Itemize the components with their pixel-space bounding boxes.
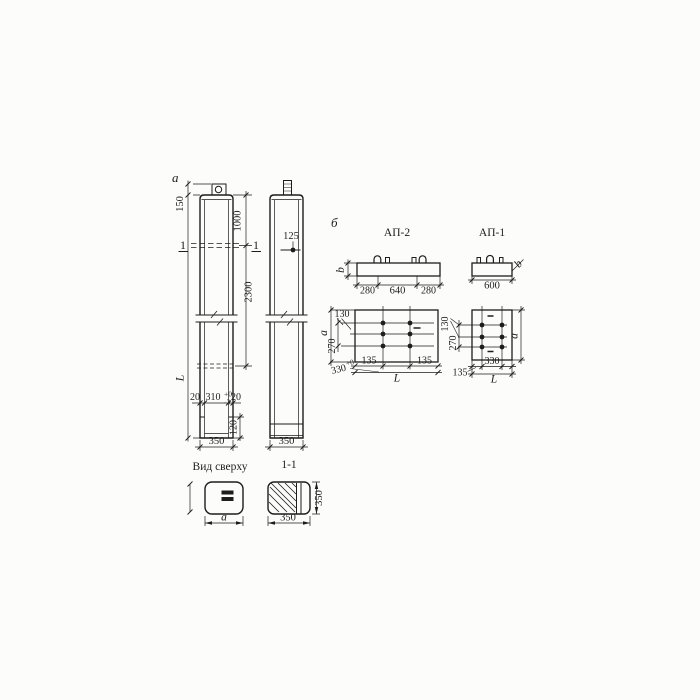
- drawing-sheet: а 1 1 150 L: [0, 0, 700, 700]
- ap2-plan-dims-bottom: 135 135 330 +0 L: [329, 356, 442, 385]
- dim-a: а: [221, 512, 227, 524]
- lifting-eye: [212, 184, 226, 195]
- ap1-title: АП-1: [479, 227, 505, 239]
- column1-elevation: а 1 1 150 L: [172, 170, 261, 451]
- dim-130: 130: [335, 309, 350, 320]
- ap1-plan-dims-left: 130 270: [440, 317, 462, 353]
- dim-130: 130: [440, 317, 451, 332]
- dim-350-height: 350: [314, 490, 325, 506]
- dim-20-left: 20: [190, 392, 200, 403]
- dim-135: 135: [453, 368, 468, 379]
- column2-body-bottom: [270, 322, 303, 438]
- dim-a: а: [318, 330, 330, 336]
- dim-330: 330: [485, 356, 500, 367]
- column2-body-top: [270, 195, 303, 315]
- ap2-plan: 130 270 а 135 135 330 +0 L: [318, 306, 442, 385]
- slot-upper: [222, 491, 234, 495]
- dim-L: L: [173, 374, 187, 382]
- dim-L: L: [490, 374, 497, 386]
- column1-dim-right: 1000 2300: [233, 191, 255, 370]
- ap1-plan-dim-a: а: [509, 306, 526, 364]
- anchor-loop: [374, 256, 381, 263]
- ap1-plan-outline: [472, 310, 512, 360]
- ap2-dim-b: b: [335, 260, 357, 281]
- dim-1000: 1000: [233, 211, 244, 232]
- ap2-beam: [357, 263, 440, 276]
- pile-column-technical-drawing: а 1 1 150 L: [0, 0, 700, 700]
- column1-break-mark: [196, 311, 238, 326]
- dim-125: 125: [283, 231, 299, 242]
- ap1-plan: 130 270 а 330 135 L: [440, 306, 525, 386]
- dim-150: 150: [175, 196, 186, 212]
- bolt-holes: [480, 323, 505, 350]
- dim-310-tol-lower: -3: [224, 398, 230, 407]
- dim-280-right: 280: [421, 286, 436, 297]
- section-mark-left: 1: [180, 238, 186, 252]
- dim-330-tol: +0: [345, 357, 355, 368]
- ap1-dim-b: b: [512, 258, 525, 271]
- ap2-elevation: АП-2 b 280 640 280: [335, 227, 444, 297]
- stud-mark: [488, 316, 494, 352]
- ap1-elevation: АП-1 600 b: [468, 227, 525, 292]
- dim-330: 330: [330, 363, 347, 377]
- section-dim-height: 350: [312, 482, 325, 514]
- dim-2300: 2300: [244, 282, 255, 303]
- dim-20-right: 20: [231, 392, 241, 403]
- anchor-stud: [477, 258, 481, 264]
- concrete-hatching: [269, 483, 296, 512]
- dim-b: b: [335, 267, 347, 273]
- dim-280-left: 280: [360, 286, 375, 297]
- dim-135-left: 135: [362, 356, 377, 367]
- column2-break-mark: [266, 311, 308, 326]
- ap1-dim-600: 600: [468, 276, 516, 292]
- top-view: Вид сверху а: [188, 461, 248, 526]
- bolt-holes: [381, 321, 413, 349]
- top-view-title: Вид сверху: [193, 461, 248, 473]
- section-1-1-view: 1-1 350 350: [268, 459, 325, 526]
- dim-350: 350: [209, 436, 225, 447]
- column1-body-top: [200, 195, 233, 315]
- dim-a: а: [509, 333, 521, 339]
- dim-270: 270: [448, 336, 459, 351]
- ap2-plan-outline: [355, 310, 438, 362]
- threaded-stud: [284, 181, 292, 196]
- dim-135-right: 135: [417, 356, 432, 367]
- dim-640: 640: [390, 286, 406, 297]
- dim-350-width: 350: [280, 513, 296, 524]
- section-mark-right: 1: [253, 238, 259, 252]
- ap2-plan-dims-left: 130 270 а: [318, 306, 351, 366]
- ap2-title: АП-2: [384, 227, 410, 239]
- anchor-stud: [386, 258, 390, 264]
- figure-a-label: а: [172, 170, 179, 185]
- dim-L: L: [393, 373, 400, 385]
- column2-elevation: 125 350: [265, 181, 308, 452]
- dim-270: 270: [327, 339, 338, 354]
- anchor-loop: [487, 255, 494, 263]
- figure-b-label: б: [331, 215, 338, 230]
- dim-310: 310: [206, 392, 221, 403]
- fixture-point: [291, 248, 296, 253]
- ap2-dim-bottom: 280 640 280: [353, 276, 444, 297]
- marker-125: 125: [281, 231, 301, 252]
- ap1-beam: [472, 263, 512, 276]
- dim-120: 120: [229, 420, 240, 435]
- slot-lower: [222, 497, 234, 501]
- anchor-loop: [419, 256, 426, 263]
- dim-600: 600: [484, 281, 500, 292]
- anchor-stud: [500, 258, 504, 264]
- anchor-stud: [412, 258, 416, 264]
- section-title: 1-1: [281, 459, 297, 471]
- section-cut-line: 1 1: [179, 238, 262, 252]
- dim-350: 350: [279, 436, 295, 447]
